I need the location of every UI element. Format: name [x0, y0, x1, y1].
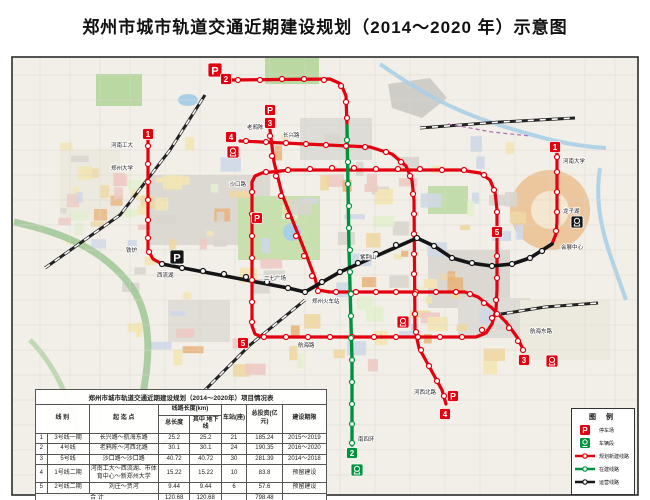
station-marker: [180, 266, 185, 271]
station-marker: [286, 286, 291, 291]
map-label: 河南大学: [563, 157, 586, 165]
total-length: 120.68: [158, 493, 190, 500]
svg-text:P: P: [173, 252, 181, 264]
cell-no: 5: [36, 483, 48, 494]
line-green-icon: [575, 464, 595, 474]
station-marker: [521, 348, 526, 353]
col-header-stations: 车站(座): [221, 405, 246, 434]
cell-investment: 185.24: [247, 433, 283, 444]
station-marker: [146, 180, 151, 185]
station-marker: [201, 269, 206, 274]
station-marker: [284, 335, 289, 340]
legend-item: 车辆段: [575, 438, 631, 448]
cell-stations: 24: [221, 444, 246, 455]
station-marker: [146, 162, 151, 167]
cell-no: 1: [36, 433, 48, 444]
station-marker: [280, 77, 285, 82]
cell-period: 预留建设: [282, 465, 326, 483]
station-marker: [438, 335, 443, 340]
station-marker: [322, 78, 327, 83]
legend-label: 停车场: [599, 427, 614, 434]
map-label: 紫荆山: [360, 253, 377, 261]
line-black-icon: [575, 477, 595, 487]
col-header-line: 线 别: [36, 405, 90, 434]
station-marker: [310, 274, 315, 279]
map-label: 河西北路: [414, 388, 437, 396]
cell-length: 15.22: [158, 465, 190, 483]
table-row: 41号线二期河南工大～西流湖、市体育中心～新郑州大学15.2215.221083…: [36, 465, 327, 483]
cell-length: 25.2: [158, 433, 190, 444]
station-marker: [146, 144, 151, 149]
station-marker: [554, 229, 559, 234]
map-label: 郑州火车站: [312, 297, 340, 305]
station-marker: [454, 290, 459, 295]
station-marker: [146, 198, 151, 203]
station-marker: [294, 234, 299, 239]
station-marker: [555, 170, 560, 175]
svg-text:P: P: [450, 392, 456, 402]
p-red-icon: P: [575, 425, 595, 435]
map-label: 长兴路: [283, 131, 300, 139]
station-marker: [303, 290, 308, 295]
station-marker: [324, 143, 329, 148]
station-marker: [350, 380, 355, 385]
depot-green-icon: [575, 438, 595, 448]
cell-underground: 25.2: [190, 433, 222, 444]
station-marker: [413, 292, 418, 297]
map-label: 西流湖: [157, 271, 174, 279]
cell-line: 5号线: [47, 454, 89, 465]
station-marker: [408, 174, 413, 179]
total-stations: [221, 493, 246, 500]
station-marker: [250, 278, 255, 283]
svg-text:1: 1: [553, 143, 558, 152]
map-label: 南四环: [358, 435, 375, 443]
cell-endpoints: 老鸦陈～河西北路: [89, 444, 158, 455]
svg-text:4: 4: [443, 410, 448, 419]
station-marker: [250, 320, 255, 325]
station-marker: [540, 249, 545, 254]
cell-endpoints: 刘庄～贾河: [89, 483, 158, 494]
cell-length: 40.72: [158, 454, 190, 465]
station-marker: [328, 335, 333, 340]
station-marker: [412, 212, 417, 217]
table-row: 13号线一期长兴路～航海东路25.225.221185.242015～2019: [36, 433, 327, 444]
station-marker: [494, 298, 499, 303]
table-total-row: 合 计 120.68 120.68 798.48: [36, 493, 327, 500]
station-marker: [555, 155, 560, 160]
station-marker: [348, 248, 353, 253]
cell-investment: 281.39: [247, 454, 283, 465]
map-label: 航海东路: [530, 327, 553, 335]
station-marker: [507, 326, 512, 331]
station-marker: [347, 204, 352, 209]
station-marker: [264, 170, 269, 175]
station-marker: [268, 134, 273, 139]
line-red-icon: [575, 451, 595, 461]
station-marker: [334, 290, 339, 295]
cell-investment: 83.8: [247, 465, 283, 483]
cell-stations: 6: [221, 483, 246, 494]
station-marker: [555, 190, 560, 195]
map-label: 沙口路: [229, 180, 246, 188]
station-marker: [495, 276, 500, 281]
station-marker: [304, 142, 309, 147]
station-marker: [286, 214, 291, 219]
cell-investment: 57.6: [247, 483, 283, 494]
station-marker: [258, 78, 263, 83]
station-marker: [250, 300, 255, 305]
station-marker: [244, 139, 249, 144]
station-marker: [345, 138, 350, 143]
station-marker: [450, 256, 455, 261]
station-marker: [348, 270, 353, 275]
total-investment: 798.48: [247, 493, 283, 500]
station-marker: [302, 77, 307, 82]
col-header-endpoints: 起 迄 点: [89, 405, 158, 434]
station-marker: [434, 290, 439, 295]
svg-text:P: P: [211, 65, 219, 77]
station-marker: [222, 272, 227, 277]
cell-no: 4: [36, 465, 48, 483]
station-marker: [354, 290, 359, 295]
cell-period: 2014～2018: [282, 454, 326, 465]
table-row: 24号线老鸦陈～河西北路30.130.124190.352016～2020: [36, 444, 327, 455]
station-marker: [344, 144, 349, 149]
legend-label: 运营线路: [599, 479, 619, 486]
station-marker: [346, 182, 351, 187]
station-marker: [495, 210, 500, 215]
station-marker: [394, 335, 399, 340]
cell-line: 3号线一期: [47, 433, 89, 444]
cell-line: 2号线二期: [47, 483, 89, 494]
svg-text:3: 3: [522, 356, 527, 365]
station-marker: [347, 226, 352, 231]
svg-text:5: 5: [241, 339, 246, 348]
project-table: 郑州市城市轨道交通近期建设规划（2014～2020年）项目情况表 线 别 起 迄…: [35, 389, 327, 500]
station-marker: [330, 166, 335, 171]
station-marker: [346, 160, 351, 165]
table-row: 35号线沙口路～沙口路40.7240.7230281.392014～2018: [36, 454, 327, 465]
svg-text:P: P: [582, 426, 588, 435]
station-marker: [279, 194, 284, 199]
station-marker: [442, 394, 447, 399]
station-marker: [250, 234, 255, 239]
cell-stations: 30: [221, 454, 246, 465]
svg-text:P: P: [254, 214, 260, 224]
station-marker: [147, 250, 152, 255]
cell-endpoints: 沙口路～沙口路: [89, 454, 158, 465]
cell-length: 9.44: [158, 483, 190, 494]
station-marker: [468, 292, 473, 297]
station-marker: [460, 335, 465, 340]
col-header-length-underground: 其中 地下线: [190, 415, 222, 433]
cell-underground: 9.44: [190, 483, 222, 494]
cell-line: 4号线: [47, 444, 89, 455]
cell-investment: 190.35: [247, 444, 283, 455]
station-marker: [412, 252, 417, 257]
svg-text:P: P: [267, 106, 273, 116]
station-marker: [264, 140, 269, 145]
map-label: 航海路: [298, 341, 315, 349]
station-marker: [308, 167, 313, 172]
station-marker: [470, 261, 475, 266]
station-marker: [490, 316, 495, 321]
station-marker: [396, 167, 401, 172]
station-marker: [146, 236, 151, 241]
station-marker: [495, 312, 500, 317]
svg-text:5: 5: [495, 228, 500, 237]
col-header-investment: 总投资(亿元): [247, 405, 283, 434]
station-marker: [344, 100, 349, 105]
col-header-length-total: 总长度: [158, 415, 190, 433]
legend-label: 在建线路: [599, 466, 619, 473]
station-marker: [160, 262, 165, 267]
station-marker: [427, 364, 432, 369]
station-marker: [274, 174, 279, 179]
station-marker: [432, 244, 437, 249]
cell-line: 1号线二期: [47, 465, 89, 483]
station-marker: [394, 243, 399, 248]
station-marker: [412, 272, 417, 277]
station-marker: [384, 150, 389, 155]
station-marker: [320, 280, 325, 285]
station-marker: [419, 348, 424, 353]
station-marker: [510, 262, 515, 267]
table-row: 52号线二期刘庄～贾河9.449.44657.6预留建设: [36, 483, 327, 494]
station-marker: [339, 84, 344, 89]
cell-stations: 21: [221, 433, 246, 444]
station-marker: [435, 379, 440, 384]
svg-text:1: 1: [146, 130, 151, 139]
cell-stations: 10: [221, 465, 246, 483]
svg-text:3: 3: [268, 119, 273, 128]
station-marker: [146, 218, 151, 223]
station-marker: [411, 192, 416, 197]
station-marker: [349, 336, 354, 341]
station-marker: [528, 256, 533, 261]
station-marker: [262, 335, 267, 340]
station-marker: [250, 190, 255, 195]
station-marker: [495, 254, 500, 259]
cell-period: 预留建设: [282, 483, 326, 494]
col-header-period: 建设期限: [282, 405, 326, 434]
station-marker: [302, 254, 307, 259]
station-marker: [270, 154, 275, 159]
svg-text:4: 4: [229, 133, 234, 142]
legend-item: 运营线路: [575, 477, 631, 487]
map-label: 铁炉: [126, 246, 138, 254]
legend-label: 车辆段: [599, 440, 614, 447]
cell-period: 2016～2020: [282, 444, 326, 455]
station-marker: [418, 167, 423, 172]
cell-underground: 15.22: [190, 465, 222, 483]
cell-no: 3: [36, 454, 48, 465]
map-label: 龙子湖: [563, 207, 580, 215]
station-marker: [244, 275, 249, 280]
col-header-length-group: 线路长度(km): [158, 405, 221, 416]
station-marker: [413, 312, 418, 317]
station-marker: [284, 141, 289, 146]
station-marker: [250, 256, 255, 261]
station-marker: [286, 168, 291, 173]
station-marker: [462, 168, 467, 173]
station-marker: [352, 166, 357, 171]
total-label: 合 计: [36, 493, 159, 500]
cell-underground: 30.1: [190, 444, 222, 455]
map-label: 老鸦陈: [247, 123, 264, 131]
station-marker: [350, 422, 355, 427]
station-marker: [394, 290, 399, 295]
station-marker: [490, 264, 495, 269]
station-marker: [414, 330, 419, 335]
cell-period: 2015～2019: [282, 433, 326, 444]
station-marker: [516, 339, 521, 344]
station-marker: [350, 358, 355, 363]
station-marker: [306, 335, 311, 340]
station-marker: [316, 289, 321, 294]
legend-label: 规划新建线路: [599, 453, 629, 460]
legend-item: 规划新建线路: [575, 451, 631, 461]
legend-title: 图 例: [575, 412, 631, 422]
station-marker: [363, 145, 368, 150]
station-marker: [440, 168, 445, 173]
station-marker: [356, 261, 361, 266]
station-marker: [492, 188, 497, 193]
map-label: 郑州大学: [111, 164, 134, 172]
map-label: 会展中心: [561, 243, 584, 251]
cell-no: 2: [36, 444, 48, 455]
station-marker: [236, 78, 241, 83]
station-marker: [399, 160, 404, 165]
svg-text:2: 2: [224, 75, 229, 84]
legend-item: P停车场: [575, 425, 631, 435]
station-marker: [372, 335, 377, 340]
station-marker: [482, 173, 487, 178]
station-marker: [482, 301, 487, 306]
cell-length: 30.1: [158, 444, 190, 455]
map-label: 二七广场: [264, 274, 287, 282]
table-title: 郑州市城市轨道交通近期建设规划（2014～2020年）项目情况表: [35, 389, 327, 404]
station-marker: [338, 270, 343, 275]
cell-underground: 40.72: [190, 454, 222, 465]
station-marker: [555, 210, 560, 215]
cell-endpoints: 河南工大～西流湖、市体育中心～新郑州大学: [89, 465, 158, 483]
map-label: 河南工大: [111, 141, 134, 149]
station-marker: [350, 402, 355, 407]
station-marker: [416, 335, 421, 340]
station-marker: [480, 328, 485, 333]
screenshot-root: { "title": "郑州市城市轨道交通近期建设规划（2014～2020 年）…: [0, 0, 650, 500]
total-period: [282, 493, 326, 500]
station-marker: [350, 441, 355, 446]
station-marker: [374, 290, 379, 295]
page-title: 郑州市城市轨道交通近期建设规划（2014～2020 年）示意图: [0, 0, 650, 50]
station-marker: [349, 314, 354, 319]
station-marker: [374, 167, 379, 172]
total-underground: 120.68: [190, 493, 222, 500]
station-marker: [345, 116, 350, 121]
station-marker: [415, 236, 420, 241]
cell-endpoints: 长兴路～航海东路: [89, 433, 158, 444]
map-legend: 图 例 P停车场车辆段规划新建线路在建线路运营线路: [571, 408, 635, 495]
legend-item: 在建线路: [575, 464, 631, 474]
station-marker: [349, 292, 354, 297]
svg-text:2: 2: [350, 449, 355, 458]
